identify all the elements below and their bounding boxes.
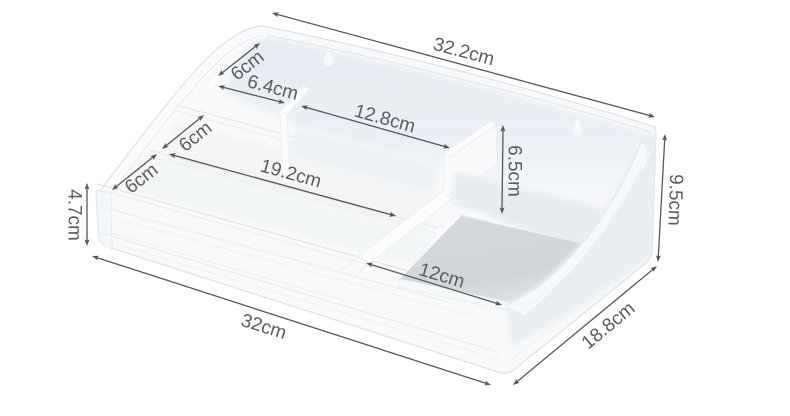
svg-text:4.7cm: 4.7cm	[63, 189, 84, 241]
svg-text:6.5cm: 6.5cm	[503, 145, 524, 197]
svg-text:9.5cm: 9.5cm	[663, 174, 686, 226]
svg-text:32cm: 32cm	[238, 310, 289, 344]
